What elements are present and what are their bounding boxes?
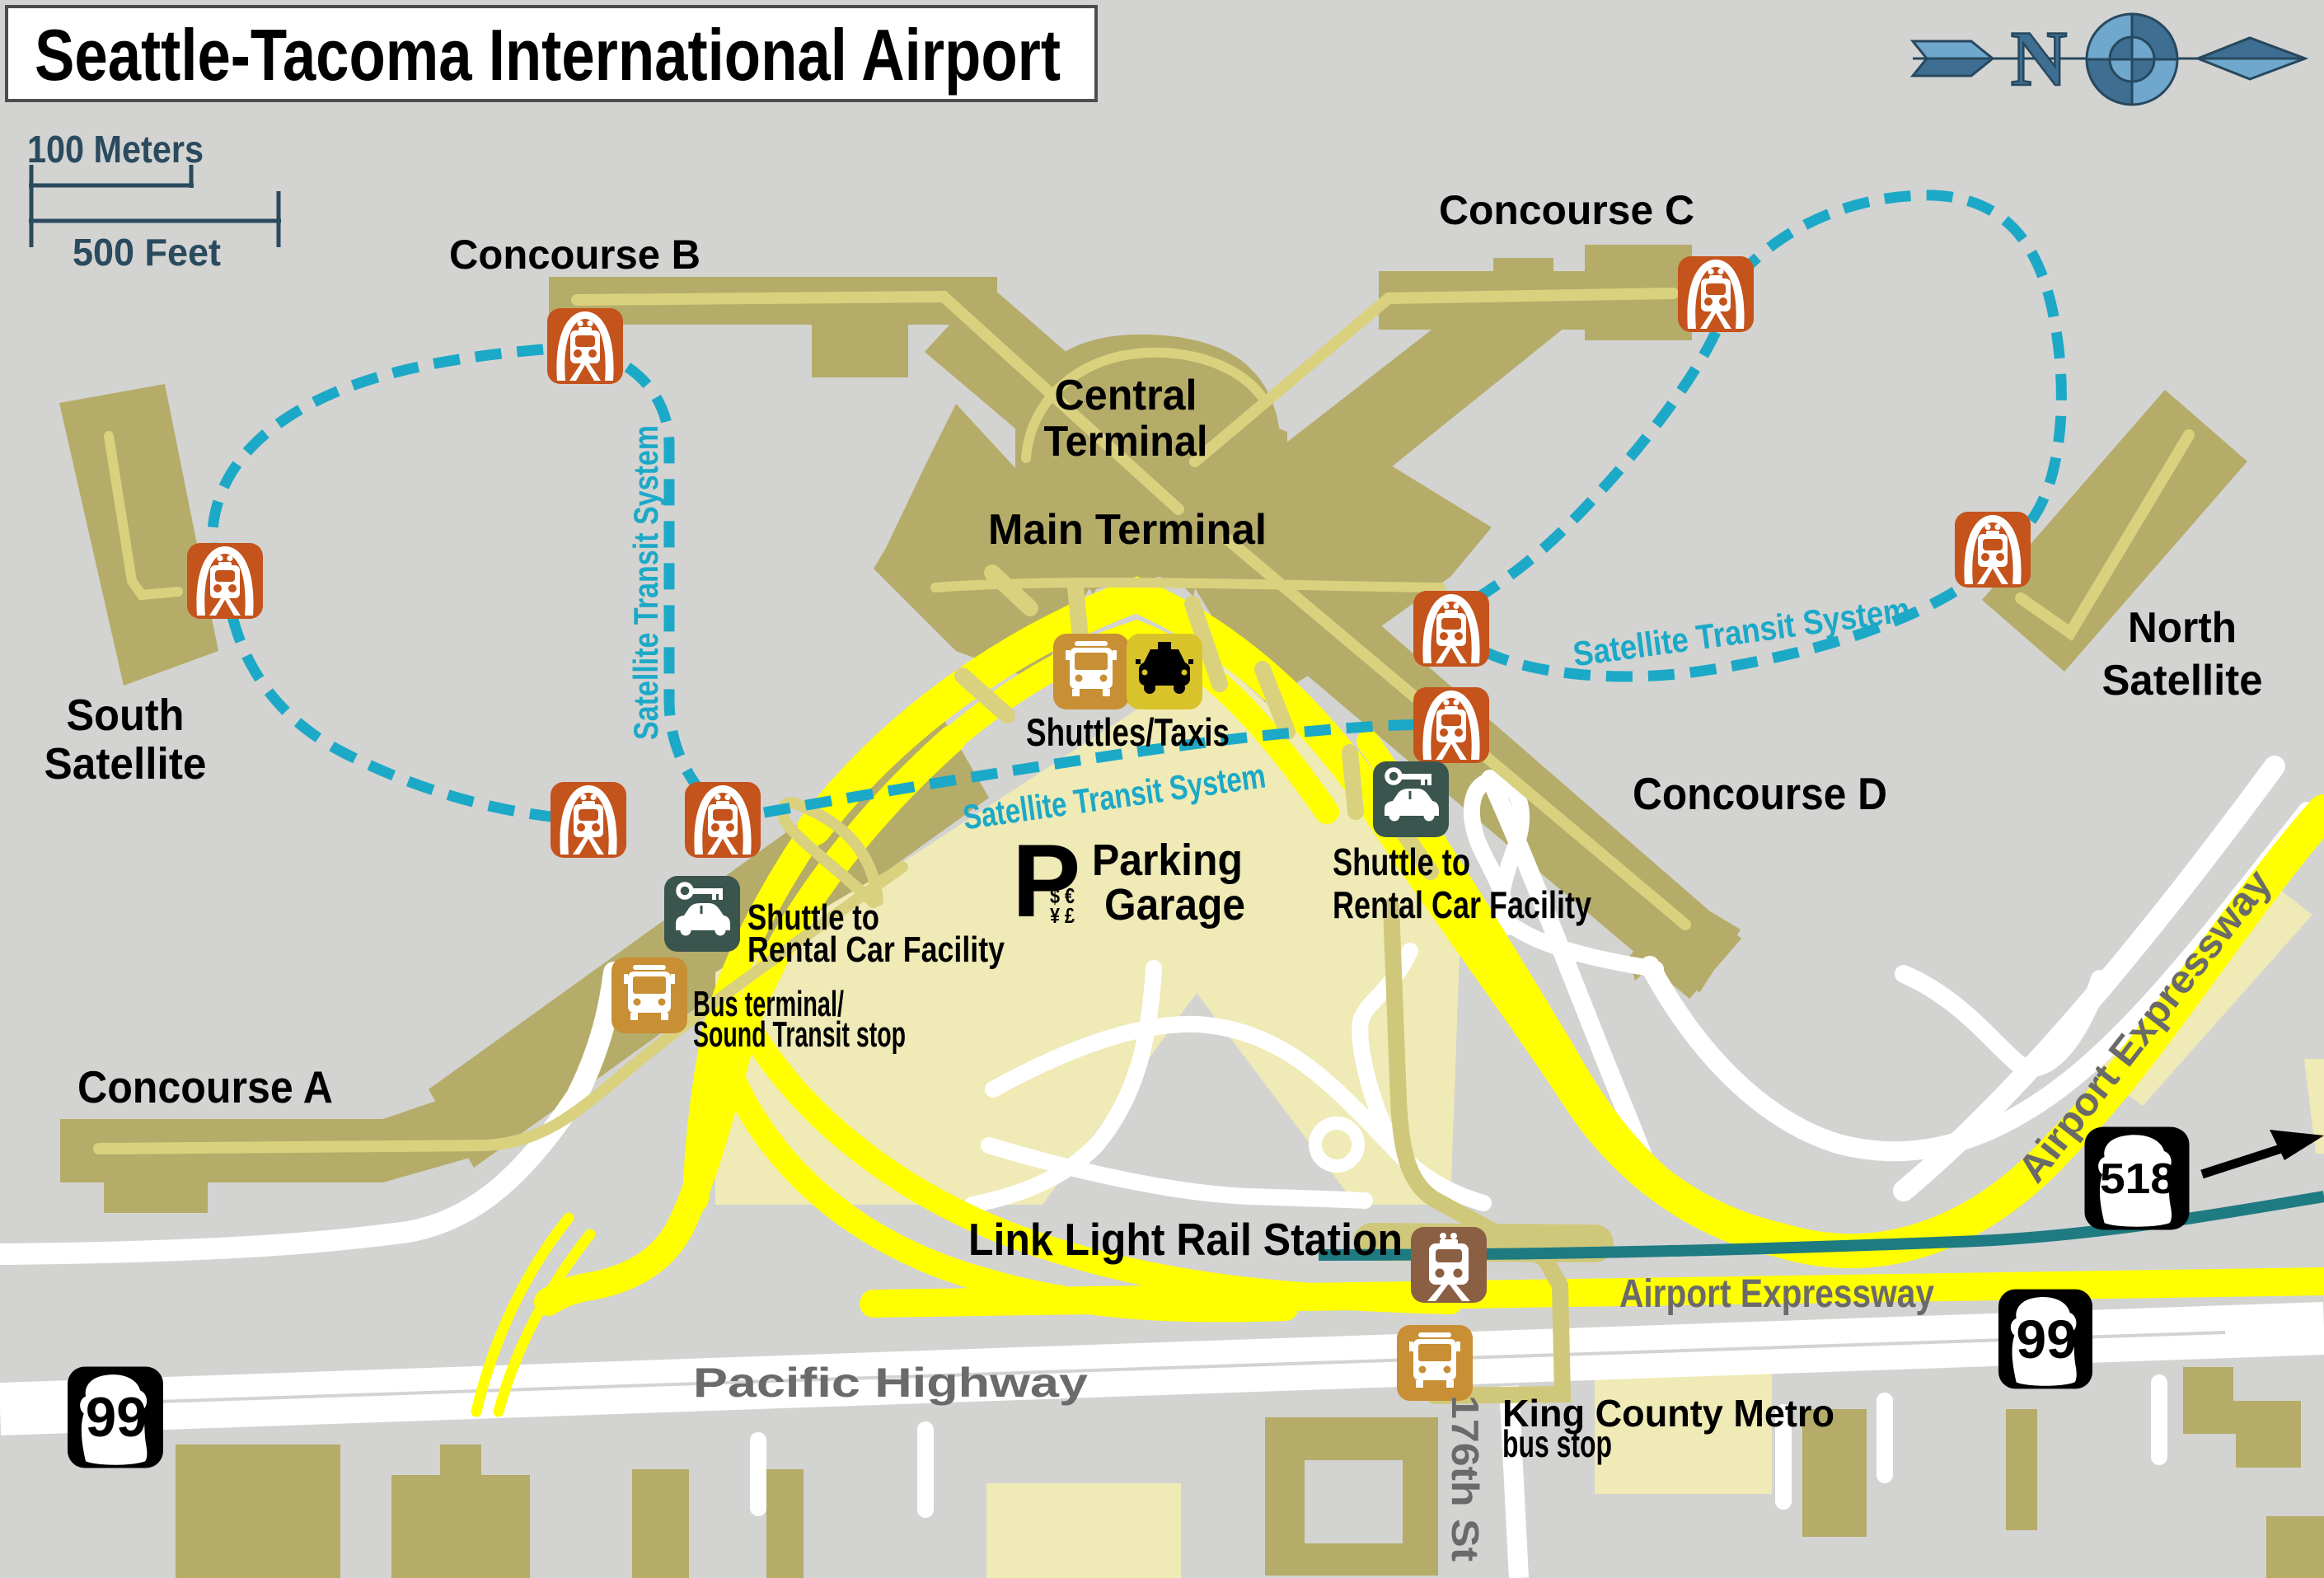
svg-text:Shuttle to: Shuttle to (1333, 841, 1470, 883)
svg-text:Satellite: Satellite (45, 739, 207, 789)
svg-text:South: South (67, 691, 185, 740)
svg-text:518: 518 (2100, 1155, 2176, 1203)
svg-text:Garage: Garage (1104, 880, 1245, 929)
svg-text:N: N (2011, 15, 2068, 102)
svg-text:Link Light Rail Station: Link Light Rail Station (968, 1214, 1403, 1265)
svg-text:¥ £: ¥ £ (1050, 903, 1075, 928)
svg-text:Rental Car Facility: Rental Car Facility (1333, 883, 1591, 926)
svg-text:Concourse D: Concourse D (1633, 768, 1887, 819)
svg-text:North: North (2128, 604, 2237, 652)
svg-text:Satellite Transit System: Satellite Transit System (626, 425, 665, 740)
svg-text:Central: Central (1055, 372, 1197, 419)
svg-text:500 Feet: 500 Feet (73, 231, 221, 274)
svg-text:99: 99 (2016, 1309, 2077, 1370)
svg-text:100 Meters: 100 Meters (27, 128, 204, 171)
svg-text:Sound Transit stop: Sound Transit stop (693, 1014, 906, 1055)
svg-text:Pacific Highway: Pacific Highway (693, 1360, 1088, 1406)
svg-text:99: 99 (86, 1387, 148, 1449)
svg-text:Concourse A: Concourse A (77, 1061, 333, 1112)
svg-text:Shuttles/Taxis: Shuttles/Taxis (1026, 710, 1230, 754)
svg-text:Main Terminal: Main Terminal (988, 506, 1267, 554)
svg-text:Airport Expressway: Airport Expressway (1619, 1272, 1934, 1316)
svg-text:176th St: 176th St (1444, 1395, 1487, 1562)
svg-text:Concourse C: Concourse C (1439, 187, 1694, 233)
svg-text:bus stop: bus stop (1502, 1422, 1612, 1465)
svg-text:Seattle-Tacoma International A: Seattle-Tacoma International Airport (35, 14, 1061, 96)
svg-text:Concourse B: Concourse B (449, 232, 700, 278)
svg-text:Terminal: Terminal (1044, 418, 1208, 466)
svg-text:Satellite: Satellite (2102, 657, 2263, 705)
svg-text:Rental Car Facility: Rental Car Facility (747, 929, 1005, 970)
svg-text:Parking: Parking (1092, 836, 1243, 885)
